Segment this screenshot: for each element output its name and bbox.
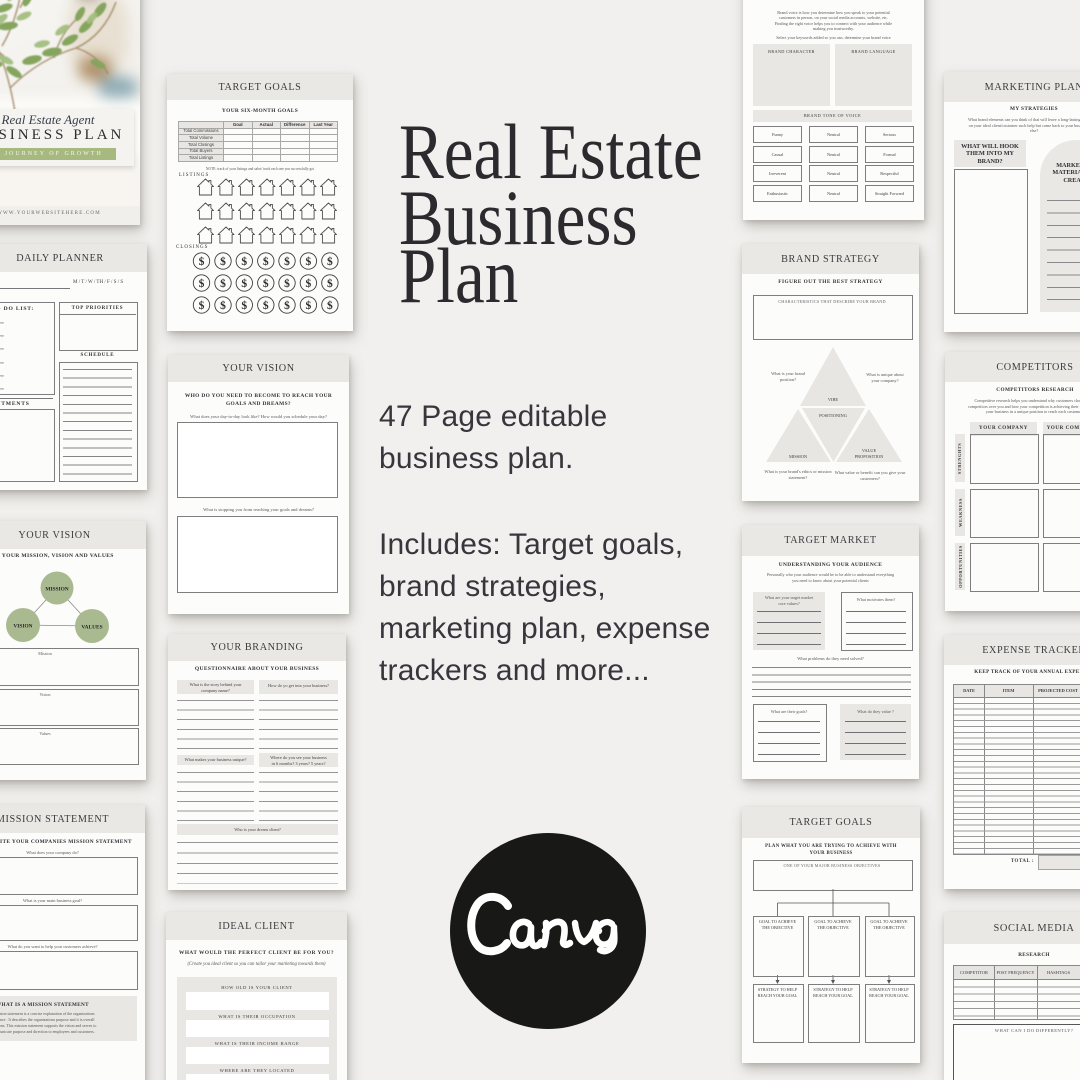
svg-text:VISION: VISION — [13, 624, 32, 630]
svg-text:POSITIONING: POSITIONING — [819, 413, 848, 418]
svg-text:VALUE: VALUE — [862, 448, 877, 453]
svg-text:MISSION: MISSION — [789, 454, 808, 459]
svg-text:PROPOSITION: PROPOSITION — [855, 454, 884, 459]
svg-text:MISSION: MISSION — [45, 587, 68, 593]
svg-text:VIBE: VIBE — [828, 397, 839, 402]
svg-text:VALUES: VALUES — [81, 625, 102, 631]
